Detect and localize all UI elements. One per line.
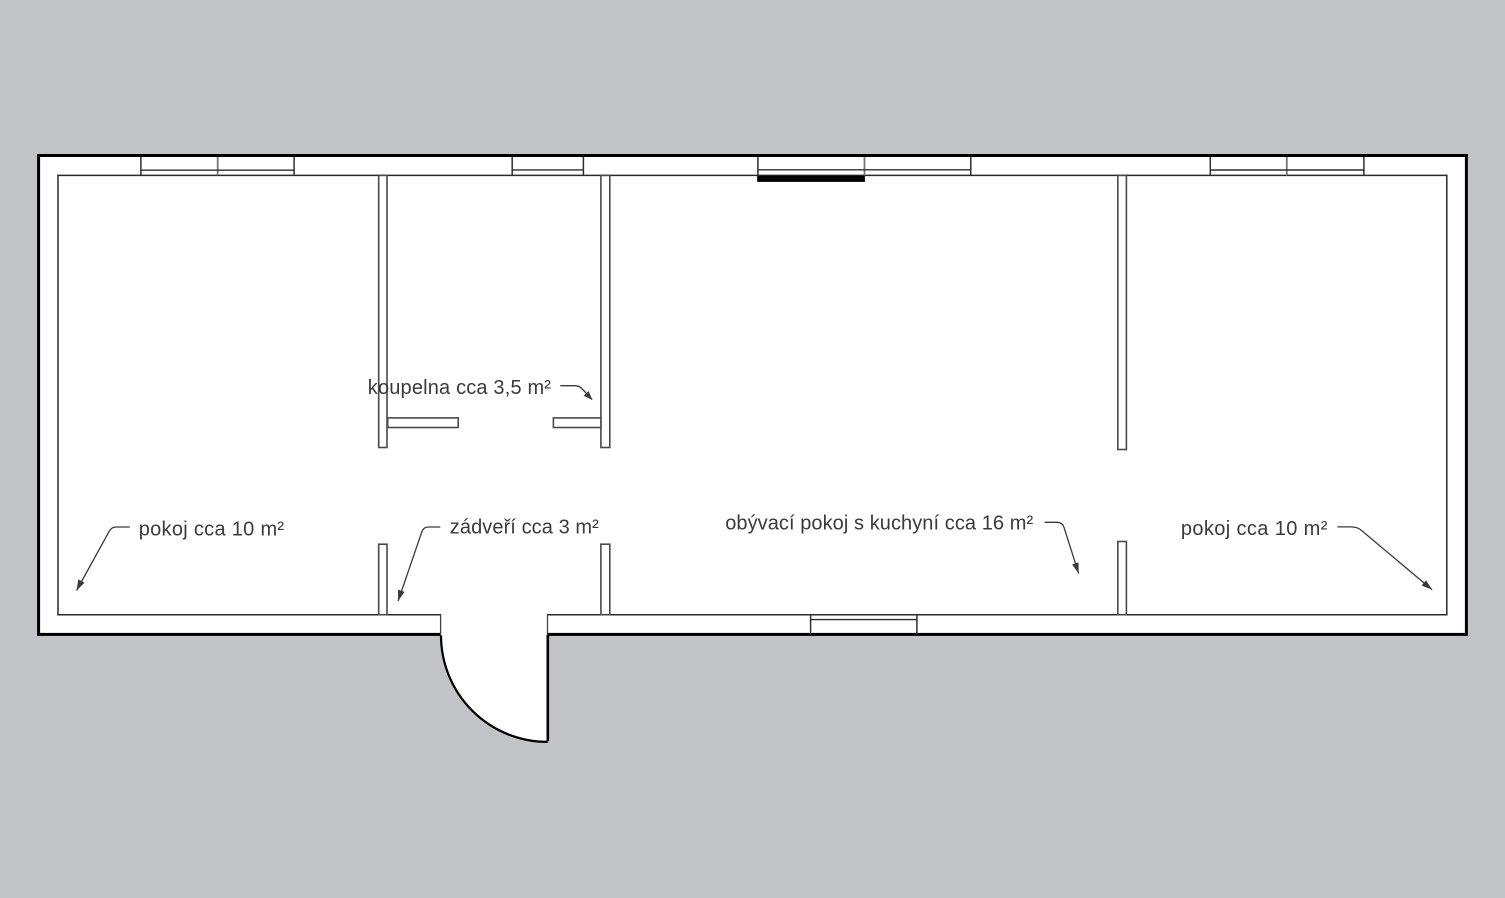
svg-text:koupelna cca 3,5 m²: koupelna cca 3,5 m²	[368, 377, 551, 399]
svg-text:zádveří cca 3 m²: zádveří cca 3 m²	[450, 517, 599, 539]
svg-text:obývací pokoj s kuchyní cca 16: obývací pokoj s kuchyní cca 16 m²	[725, 512, 1033, 534]
svg-text:pokoj cca 10 m²: pokoj cca 10 m²	[1181, 518, 1328, 540]
svg-text:pokoj cca 10 m²: pokoj cca 10 m²	[139, 519, 285, 541]
